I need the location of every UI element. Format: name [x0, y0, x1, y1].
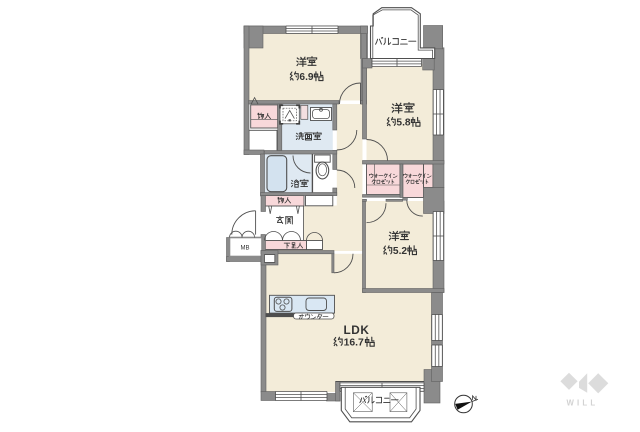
svg-text:6.9: 6.9: [299, 72, 313, 83]
svg-text:5.8: 5.8: [396, 118, 410, 129]
svg-text:16.7: 16.7: [344, 338, 364, 349]
svg-text:5.2: 5.2: [393, 246, 407, 257]
svg-text:LDK: LDK: [344, 323, 370, 337]
svg-text:WILL: WILL: [567, 399, 599, 408]
svg-text:MB: MB: [241, 246, 250, 252]
